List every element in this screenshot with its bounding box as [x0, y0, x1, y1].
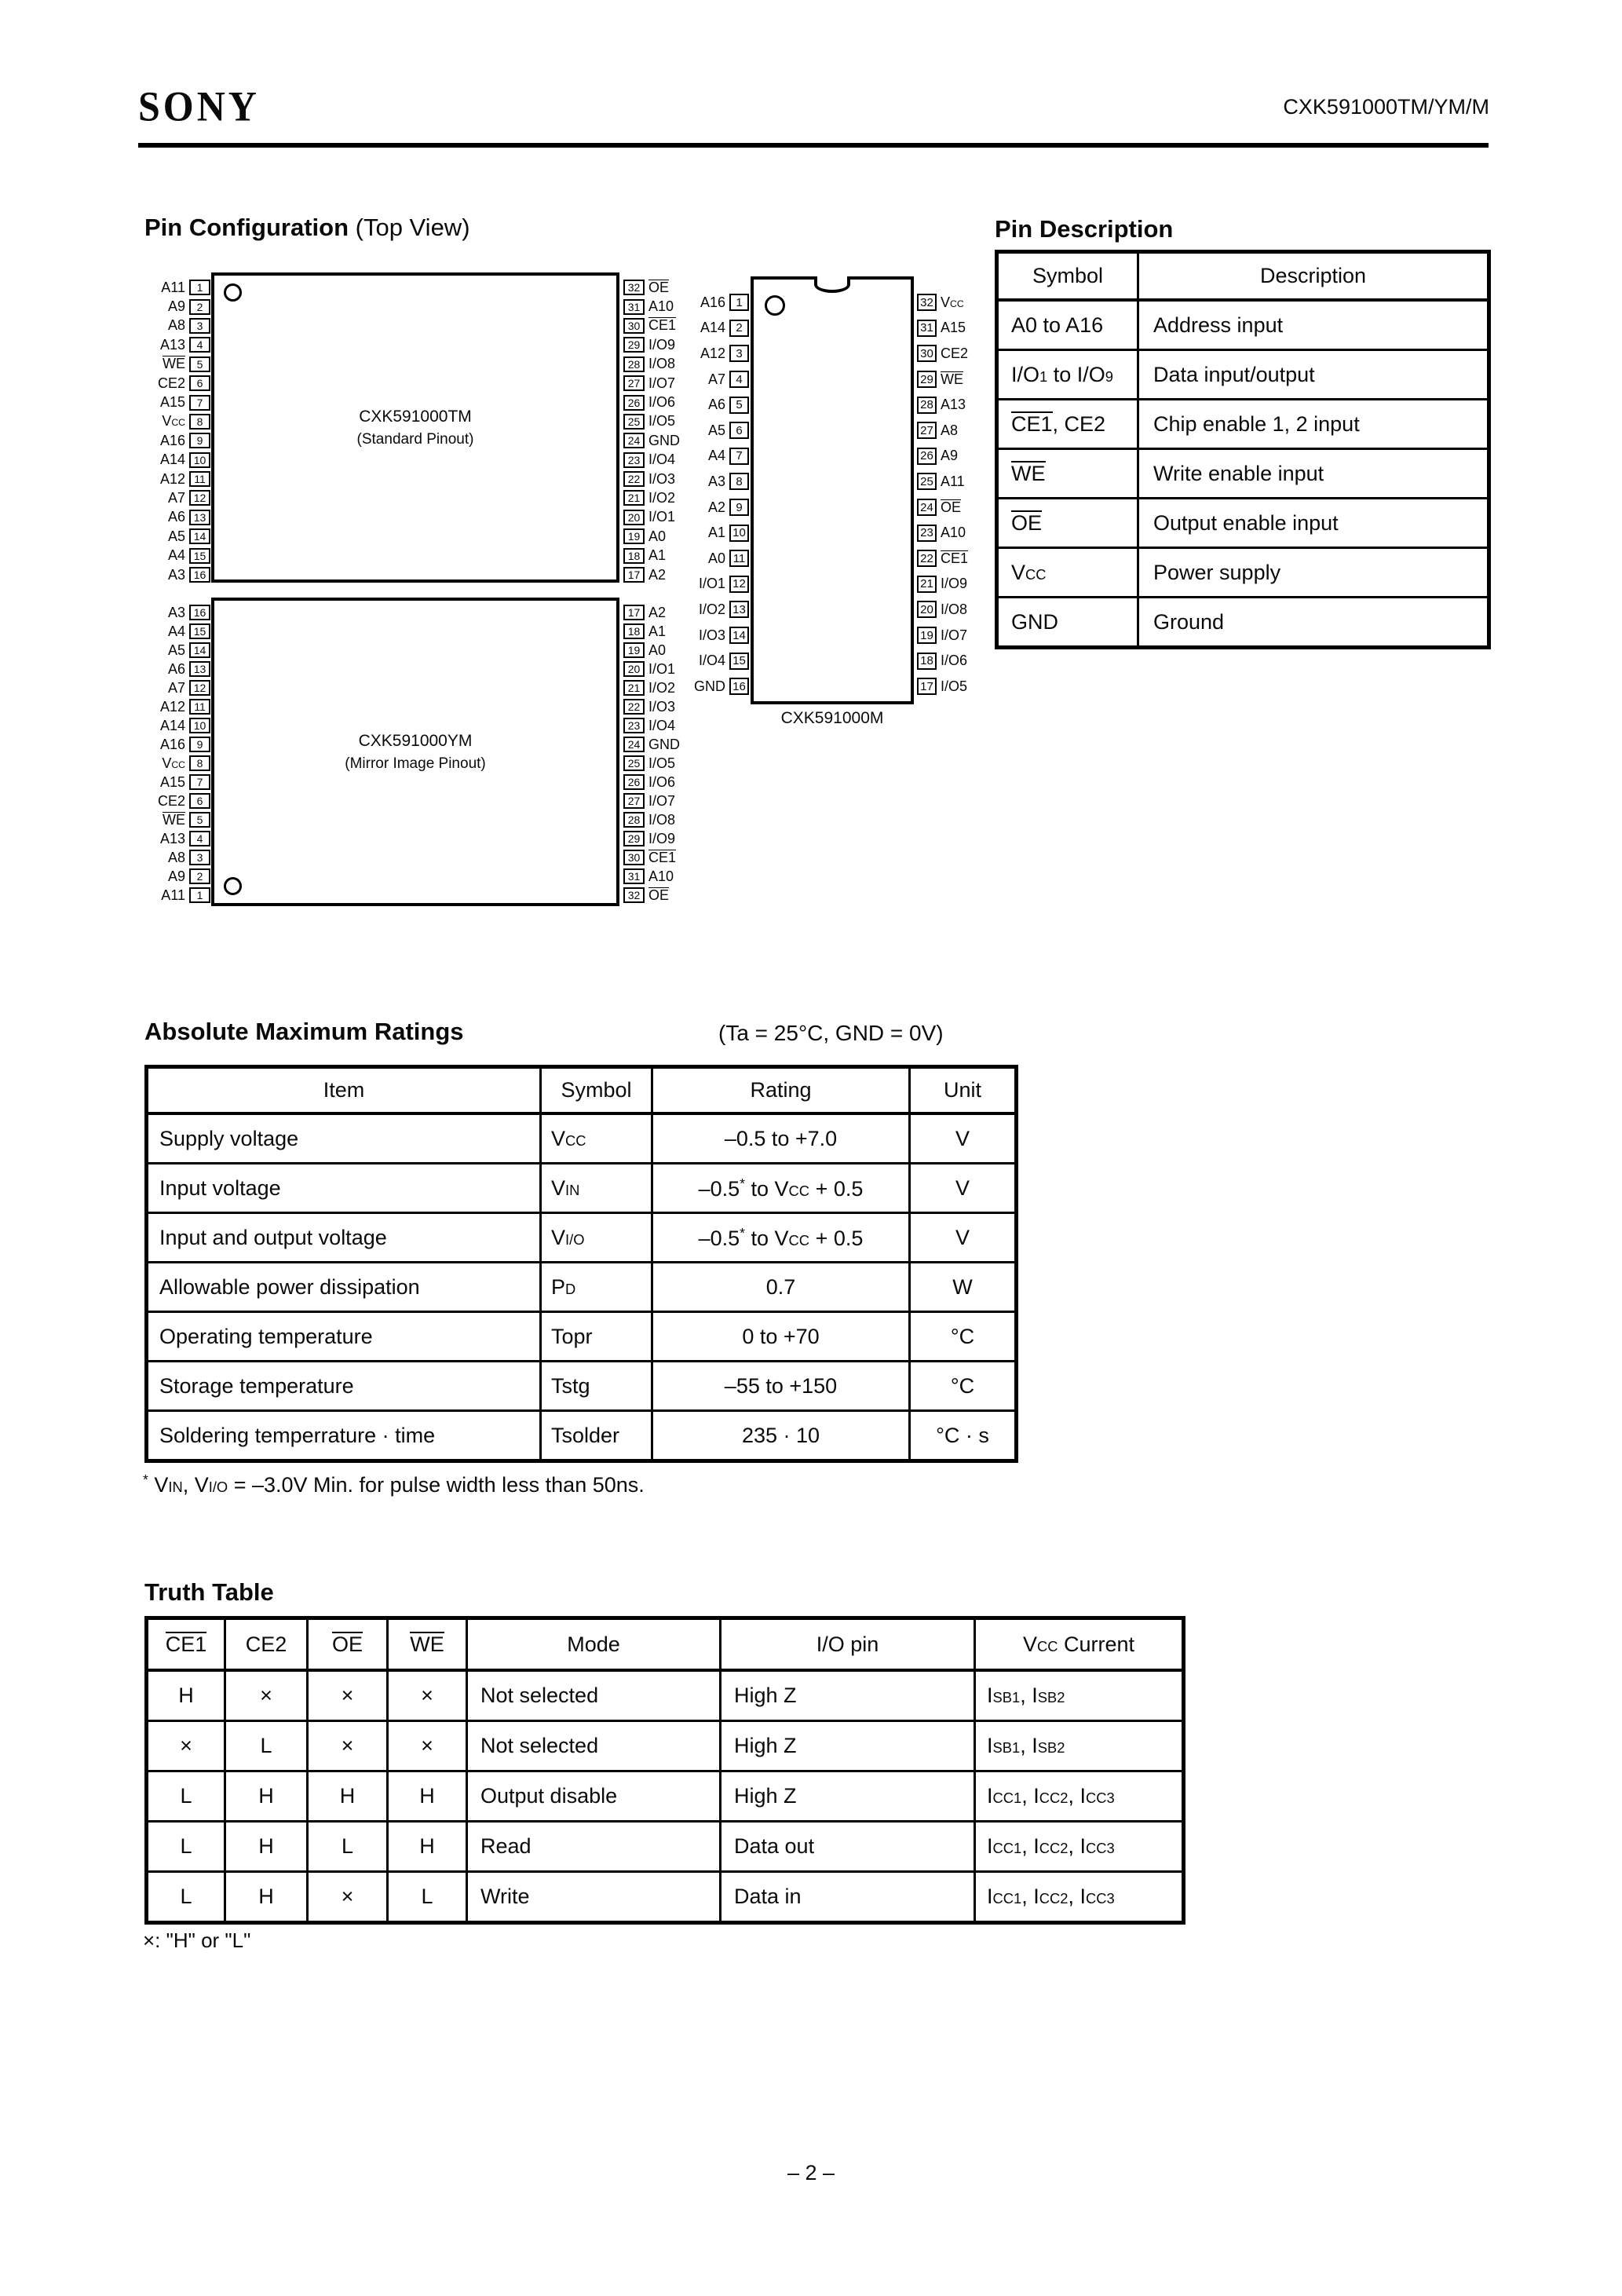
pin-label: A14 — [160, 452, 185, 468]
pin-label: WE — [941, 371, 963, 388]
table-cell: V — [910, 1164, 1017, 1213]
pin-number: 12 — [189, 490, 210, 506]
table-cell: High Z — [721, 1771, 975, 1822]
pin-label: A8 — [168, 850, 185, 866]
table-cell: L — [147, 1771, 225, 1822]
table-cell: Ground — [1138, 598, 1489, 648]
pin-number: 4 — [189, 337, 210, 353]
table-row: LH×LWriteData inICC1, ICC2, ICC3 — [147, 1872, 1184, 1923]
column-header: Item — [147, 1067, 541, 1114]
table-cell: ICC1, ICC2, ICC3 — [975, 1872, 1184, 1923]
table-cell: × — [225, 1670, 308, 1721]
table-cell: V — [910, 1213, 1017, 1263]
pin-number: 27 — [917, 422, 937, 439]
pin-number: 2 — [729, 320, 749, 337]
table-cell: H — [225, 1822, 308, 1872]
table-row: Supply voltageVCC–0.5 to +7.0V — [147, 1113, 1017, 1164]
table-cell: Write — [467, 1872, 721, 1923]
pin-label: I/O6 — [648, 774, 675, 791]
pin-number: 19 — [623, 642, 645, 658]
pin-label: A16 — [160, 737, 185, 753]
pin-label: A9 — [168, 298, 185, 315]
pin-label: I/O6 — [941, 653, 967, 669]
pin-label: I/O5 — [648, 755, 675, 772]
pin-label: VCC — [941, 294, 964, 311]
pin-row: 22I/O3 — [623, 697, 680, 716]
pin-number: 30 — [917, 345, 937, 362]
datasheet-page: SONY CXK591000TM/YM/M Pin Configuration … — [0, 0, 1622, 2296]
pin-row: 29I/O9 — [623, 829, 680, 848]
table-cell: WE — [997, 449, 1138, 499]
header-row: CE1CE2OEWEModeI/O pinVCC Current — [147, 1618, 1184, 1671]
pin-number: 23 — [917, 525, 937, 542]
table-cell: OE — [997, 499, 1138, 548]
column-header: Symbol — [997, 252, 1138, 301]
table-cell: ISB1, ISB2 — [975, 1721, 1184, 1771]
table-cell: × — [147, 1721, 225, 1771]
pin1-indicator-dot-tm — [224, 283, 242, 302]
pin-label: A10 — [648, 868, 674, 885]
pin-label: I/O8 — [648, 812, 675, 828]
table-cell: H — [225, 1872, 308, 1923]
column-header: VCC Current — [975, 1618, 1184, 1671]
pin-number: 16 — [189, 605, 210, 620]
table-cell: CE1, CE2 — [997, 400, 1138, 449]
pin-label: A16 — [160, 433, 185, 449]
pin-number: 6 — [189, 375, 210, 391]
table-row: LHLHReadData outICC1, ICC2, ICC3 — [147, 1822, 1184, 1872]
pin-label: A1 — [708, 525, 725, 541]
pin-row: I/O112 — [648, 572, 749, 598]
column-header: I/O pin — [721, 1618, 975, 1671]
pin-label: A7 — [168, 490, 185, 506]
pin-number: 28 — [623, 812, 645, 828]
pin-label: A7 — [168, 680, 185, 696]
pin-label: A8 — [941, 422, 958, 439]
pin-row: A1211 — [138, 470, 210, 488]
pin-row: A1410 — [138, 716, 210, 735]
table-cell: × — [308, 1721, 388, 1771]
pin-number: 15 — [729, 653, 749, 670]
pin-configuration-heading: Pin Configuration (Top View) — [144, 214, 470, 242]
pin-label: A0 — [708, 550, 725, 567]
pin-number: 9 — [189, 433, 210, 448]
table-cell: Data input/output — [1138, 350, 1489, 400]
pin-number: 26 — [623, 774, 645, 790]
pin-row: A169 — [138, 431, 210, 450]
table-cell: Soldering temperrature · time — [147, 1411, 541, 1461]
pin-number: 25 — [623, 414, 645, 430]
page-number: – 2 – — [0, 2161, 1622, 2185]
table-cell: × — [308, 1670, 388, 1721]
pin-row: I/O314 — [648, 623, 749, 649]
pin-row: 21I/O9 — [917, 572, 968, 598]
table-cell: A0 to A16 — [997, 300, 1138, 350]
pin-number: 8 — [189, 414, 210, 430]
pin-label: CE1 — [941, 550, 968, 567]
pin-number: 1 — [189, 280, 210, 295]
table-cell: Tstg — [541, 1362, 652, 1411]
table-row: CE1, CE2Chip enable 1, 2 input — [997, 400, 1489, 449]
pin-row: A123 — [648, 341, 749, 367]
pin-row: 24GND — [623, 735, 680, 754]
table-cell: L — [388, 1872, 467, 1923]
pin-row: A316 — [138, 565, 210, 584]
table-cell: VCC — [541, 1113, 652, 1164]
pin-label: A3 — [708, 473, 725, 490]
pin-number: 17 — [623, 567, 645, 583]
pin-label: A11 — [941, 473, 965, 490]
tm-left-pin-column: A111A92A83A134WE5CE26A157VCC8A169A1410A1… — [138, 278, 210, 584]
pin-number: 9 — [729, 499, 749, 516]
column-header: Description — [1138, 252, 1489, 301]
package-notch-m — [814, 276, 850, 293]
pin-label: A11 — [161, 280, 185, 296]
pin-number: 6 — [189, 793, 210, 809]
table-cell: × — [388, 1670, 467, 1721]
pin-row: A157 — [138, 773, 210, 792]
table-cell: Topr — [541, 1312, 652, 1362]
chip-body-ym: CXK591000YM (Mirror Image Pinout) — [211, 598, 619, 906]
table-row: Storage temperatureTstg–55 to +150°C — [147, 1362, 1017, 1411]
pin-label: I/O4 — [648, 718, 675, 734]
doc-number: CXK591000TM/YM/M — [1283, 95, 1489, 119]
pin-label: A16 — [700, 294, 725, 311]
pin-row: I/O213 — [648, 597, 749, 623]
pin-number: 7 — [729, 448, 749, 465]
pin-label: A11 — [161, 887, 185, 904]
pin-number: 13 — [729, 601, 749, 618]
pin-row: 23I/O4 — [623, 716, 680, 735]
pin-label: I/O9 — [941, 576, 967, 592]
ym-left-pin-column: A316A415A514A613A712A1211A1410A169VCC8A1… — [138, 603, 210, 905]
pin-label: I/O8 — [941, 601, 967, 618]
table-cell: L — [308, 1822, 388, 1872]
pin-row: A712 — [138, 488, 210, 507]
pin-label: WE — [163, 356, 185, 372]
pin-label: A3 — [168, 567, 185, 583]
pin-number: 28 — [917, 397, 937, 414]
header-rule — [138, 143, 1489, 148]
table-cell: Storage temperature — [147, 1362, 541, 1411]
pin-label: GND — [648, 737, 680, 753]
pin-number: 8 — [729, 473, 749, 490]
table-cell: H — [225, 1771, 308, 1822]
table-cell: V — [910, 1113, 1017, 1164]
ratings-footnote: * VIN, VI/O = –3.0V Min. for pulse width… — [143, 1472, 645, 1497]
pin-number: 32 — [623, 887, 645, 903]
table-cell: PD — [541, 1263, 652, 1312]
pin-row: 28I/O8 — [623, 810, 680, 829]
pin-label: WE — [163, 812, 185, 828]
pin-number: 6 — [729, 422, 749, 439]
column-header: WE — [388, 1618, 467, 1671]
pin-number: 20 — [917, 601, 937, 618]
pin-row: I/O415 — [648, 648, 749, 674]
chip-body-tm: CXK591000TM (Standard Pinout) — [211, 272, 619, 583]
pin-label: A8 — [168, 317, 185, 334]
table-row: VCCPower supply — [997, 548, 1489, 598]
pin-number: 29 — [917, 371, 937, 388]
pin-number: 18 — [917, 653, 937, 670]
pin-number: 10 — [189, 718, 210, 733]
pin-number: 4 — [189, 831, 210, 846]
pin-row: WE5 — [138, 355, 210, 374]
pin-number: 21 — [917, 576, 937, 593]
table-cell: ISB1, ISB2 — [975, 1670, 1184, 1721]
table-row: Allowable power dissipationPD0.7W — [147, 1263, 1017, 1312]
pin-number: 2 — [189, 299, 210, 315]
table-row: H×××Not selectedHigh ZISB1, ISB2 — [147, 1670, 1184, 1721]
pin-row: A415 — [138, 546, 210, 565]
pin-number: 22 — [623, 471, 645, 487]
pin-row: A29 — [648, 495, 749, 521]
pin-row: 27I/O7 — [623, 792, 680, 810]
pin-number: 14 — [729, 627, 749, 644]
table-cell: 0 to +70 — [652, 1312, 910, 1362]
pin-row: 27A8 — [917, 418, 968, 444]
column-header: CE1 — [147, 1618, 225, 1671]
pin-number: 11 — [189, 471, 210, 487]
header-row: SymbolDescription — [997, 252, 1489, 301]
table-cell: Data out — [721, 1822, 975, 1872]
table-cell: Input voltage — [147, 1164, 541, 1213]
table-cell: ICC1, ICC2, ICC3 — [975, 1771, 1184, 1822]
pin-label: I/O3 — [699, 627, 725, 644]
pin-row: A316 — [138, 603, 210, 622]
table-cell: L — [147, 1872, 225, 1923]
pin-number: 8 — [189, 755, 210, 771]
pin-row: 31A15 — [917, 316, 968, 342]
pin-label: A12 — [700, 345, 725, 362]
pin-number: 26 — [917, 448, 937, 465]
table-cell: –0.5 to +7.0 — [652, 1113, 910, 1164]
pin-number: 20 — [623, 661, 645, 677]
pin-number: 3 — [189, 318, 210, 334]
pin-label: GND — [694, 678, 725, 695]
pin-number: 1 — [189, 887, 210, 903]
pin-number: 10 — [729, 525, 749, 542]
absolute-maximum-ratings-heading: Absolute Maximum Ratings — [144, 1018, 464, 1046]
pin-number: 15 — [189, 548, 210, 564]
table-cell: Not selected — [467, 1721, 721, 1771]
absolute-maximum-ratings-table: ItemSymbolRatingUnitSupply voltageVCC–0.… — [144, 1065, 1018, 1463]
pin-number: 22 — [917, 550, 937, 567]
chip-title-ym: CXK591000YM (Mirror Image Pinout) — [345, 729, 486, 775]
pin-number: 17 — [917, 678, 937, 695]
pin-label: I/O4 — [699, 653, 725, 669]
pin-row: A1211 — [138, 697, 210, 716]
table-cell: 235 · 10 — [652, 1411, 910, 1461]
truth-table: CE1CE2OEWEModeI/O pinVCC CurrentH×××Not … — [144, 1616, 1185, 1925]
pin-number: 20 — [623, 510, 645, 525]
column-header: Unit — [910, 1067, 1017, 1114]
m-right-pin-column: 32VCC31A1530CE229WE28A1327A826A925A1124O… — [917, 290, 968, 700]
table-cell: Tsolder — [541, 1411, 652, 1461]
table-cell: H — [388, 1771, 467, 1822]
pin-number: 21 — [623, 680, 645, 696]
pin1-indicator-dot-ym — [224, 877, 242, 895]
column-header: OE — [308, 1618, 388, 1671]
pin-row: 18I/O6 — [917, 648, 968, 674]
table-cell: VIN — [541, 1164, 652, 1213]
table-cell: °C — [910, 1362, 1017, 1411]
table-cell: I/O1 to I/O9 — [997, 350, 1138, 400]
pin-row: A712 — [138, 678, 210, 697]
pin-row: A134 — [138, 829, 210, 848]
table-cell: Allowable power dissipation — [147, 1263, 541, 1312]
pin-row: A514 — [138, 527, 210, 546]
pin-row: 17I/O5 — [917, 674, 968, 700]
pin-row: 25A11 — [917, 469, 968, 495]
pin-row: A011 — [648, 546, 749, 572]
pin-number: 10 — [189, 452, 210, 468]
table-row: Operating temperatureTopr0 to +70°C — [147, 1312, 1017, 1362]
table-row: WEWrite enable input — [997, 449, 1489, 499]
pin-row: 28A13 — [917, 392, 968, 418]
table-cell: Output disable — [467, 1771, 721, 1822]
pin-row: 31A10 — [623, 867, 680, 886]
table-cell: Address input — [1138, 300, 1489, 350]
pin-row: 30CE2 — [917, 341, 968, 367]
pin-label: A6 — [708, 397, 725, 413]
pin-label: A5 — [168, 642, 185, 659]
pin-label: A14 — [160, 718, 185, 734]
pin-label: A4 — [168, 547, 185, 564]
pin-number: 13 — [189, 510, 210, 525]
pin-row: A92 — [138, 297, 210, 316]
column-header: Mode — [467, 1618, 721, 1671]
table-cell: W — [910, 1263, 1017, 1312]
pin-row: VCC8 — [138, 412, 210, 431]
pin-number: 26 — [623, 395, 645, 411]
table-cell: Power supply — [1138, 548, 1489, 598]
chip-name-tm: CXK591000TM — [357, 405, 474, 429]
pin-number: 22 — [623, 699, 645, 715]
pin-row: A134 — [138, 335, 210, 354]
pin-number: 11 — [189, 699, 210, 715]
pin-row: A74 — [648, 367, 749, 393]
pin-label: A5 — [168, 528, 185, 545]
pin-label: A13 — [941, 397, 966, 413]
pin-configuration-heading-suffix: (Top View) — [349, 214, 470, 241]
pin-number: 12 — [729, 576, 749, 593]
pin-label: A6 — [168, 661, 185, 678]
table-cell: –0.5* to VCC + 0.5 — [652, 1213, 910, 1263]
table-cell: Input and output voltage — [147, 1213, 541, 1263]
pin-label: A7 — [708, 371, 725, 388]
header-row: ItemSymbolRatingUnit — [147, 1067, 1017, 1114]
pin-label: A5 — [708, 422, 725, 439]
pin-label: A10 — [941, 525, 966, 541]
pin-number: 4 — [729, 371, 749, 388]
pin-number: 3 — [189, 850, 210, 865]
pin-row: A83 — [138, 316, 210, 335]
pin-number: 25 — [917, 473, 937, 490]
table-cell: H — [308, 1771, 388, 1822]
pin-row: 32VCC — [917, 290, 968, 316]
pin-row: A415 — [138, 622, 210, 641]
table-cell: Read — [467, 1822, 721, 1872]
pin-number: 1 — [729, 294, 749, 311]
pin-label: I/O5 — [941, 678, 967, 695]
pin-number: 32 — [623, 280, 645, 295]
table-cell: GND — [997, 598, 1138, 648]
pin-row: A65 — [648, 392, 749, 418]
pin-number: 27 — [623, 375, 645, 391]
pin-row: 22CE1 — [917, 546, 968, 572]
pin-row: A92 — [138, 867, 210, 886]
pin-number: 11 — [729, 550, 749, 567]
chip-body-m — [751, 276, 914, 704]
truth-table-heading: Truth Table — [144, 1578, 274, 1607]
table-cell: Data in — [721, 1872, 975, 1923]
pin-row: A56 — [648, 418, 749, 444]
pin-row: A111 — [138, 886, 210, 905]
pin-row: A613 — [138, 508, 210, 527]
pin-row: VCC8 — [138, 754, 210, 773]
pin-row: A169 — [138, 735, 210, 754]
pin-number: 2 — [189, 868, 210, 884]
sony-logo: SONY — [138, 82, 260, 131]
table-cell: ICC1, ICC2, ICC3 — [975, 1822, 1184, 1872]
pin-label: A15 — [160, 774, 185, 791]
pin-row: A613 — [138, 660, 210, 678]
pin-number: 14 — [189, 528, 210, 544]
pin-label: I/O7 — [648, 793, 675, 810]
pin-label: I/O9 — [648, 831, 675, 847]
table-row: Input and output voltageVI/O–0.5* to VCC… — [147, 1213, 1017, 1263]
table-cell: VCC — [997, 548, 1138, 598]
pin-number: 29 — [623, 831, 645, 846]
chip-pinout-type-tm: (Standard Pinout) — [357, 429, 474, 451]
pin-number: 27 — [623, 793, 645, 809]
pin-number: 30 — [623, 850, 645, 865]
pin-row: A1410 — [138, 451, 210, 470]
pin-label: A9 — [941, 448, 958, 464]
pin-number: 15 — [189, 623, 210, 639]
pin-label: A13 — [160, 831, 185, 847]
pin-number: 18 — [623, 548, 645, 564]
table-cell: –55 to +150 — [652, 1362, 910, 1411]
pin-label: OE — [941, 499, 961, 516]
pin-number: 9 — [189, 737, 210, 752]
pin-number: 7 — [189, 774, 210, 790]
pin-row: A161 — [648, 290, 749, 316]
pin-label: I/O7 — [941, 627, 967, 644]
pin-label: A3 — [168, 605, 185, 621]
pin-row: 29WE — [917, 367, 968, 393]
pin-label: A15 — [941, 320, 966, 336]
chip-pinout-type-ym: (Mirror Image Pinout) — [345, 753, 486, 775]
table-cell: H — [388, 1822, 467, 1872]
pin1-indicator-dot-m — [765, 295, 785, 316]
pin-number: 25 — [623, 755, 645, 771]
table-cell: Output enable input — [1138, 499, 1489, 548]
chip-name-m: CXK591000M — [727, 709, 937, 728]
pin-number: 32 — [917, 294, 937, 311]
pin-number: 24 — [917, 499, 937, 516]
pin-number: 19 — [623, 528, 645, 544]
pin-row: WE5 — [138, 810, 210, 829]
pin-row: 23A10 — [917, 520, 968, 546]
pin-row: 24OE — [917, 495, 968, 521]
pin-number: 5 — [189, 356, 210, 372]
pin-row: CE26 — [138, 792, 210, 810]
table-cell: Chip enable 1, 2 input — [1138, 400, 1489, 449]
pin-number: 16 — [729, 678, 749, 695]
table-cell: High Z — [721, 1721, 975, 1771]
